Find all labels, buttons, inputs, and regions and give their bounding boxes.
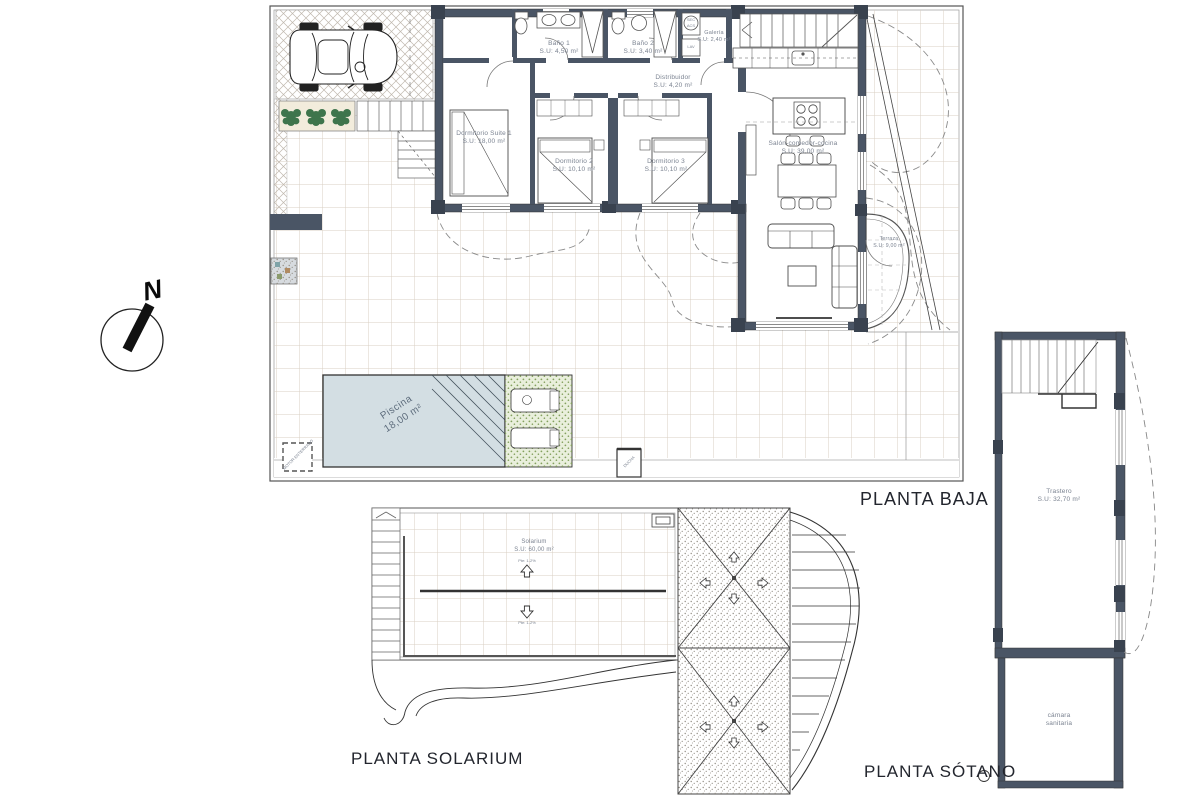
room-label-suite1: Dormitorio Suite 1 S.U: 18,00 m² (444, 130, 524, 147)
room-label-galeria: Galería S.U: 2,40 m² (692, 30, 736, 44)
room-label-solarium: Solarium S.U: 60,00 m² (499, 539, 569, 555)
skylight-box (652, 514, 674, 527)
title-planta-solarium: PLANTA SOLARIUM (351, 749, 523, 769)
room-label-camara: cámara sanitaria (1024, 712, 1094, 729)
room-label-salon: Salón-comedor-cocina S.U: 39,00 m² (758, 140, 848, 157)
sec-label: SEC (682, 17, 700, 22)
room-label-terraza: Terraza S.U: 9,00 m² (864, 236, 914, 250)
curved-pergola-edge (790, 512, 860, 790)
garden-wall (270, 214, 322, 230)
solarium-stairs (372, 508, 400, 660)
bedroom-furniture (450, 100, 708, 203)
room-label-dorm3: Dormitorio 3 S.U: 10,10 m² (631, 158, 701, 175)
car-icon (290, 23, 397, 91)
basement-boundary-dash (1124, 338, 1155, 654)
ground-floor-plan (101, 5, 963, 481)
lav-label: LAV (682, 44, 700, 49)
acs-label: ACS (682, 23, 700, 28)
kitchen-counter (733, 48, 858, 68)
room-label-distribuidor: Distribuidor S.U: 4,20 m² (642, 74, 704, 91)
floorplan-canvas: N PLANTA BAJA PLANTA SOLARIUM PLANTA SÓT… (0, 0, 1200, 800)
title-planta-baja: PLANTA BAJA (860, 489, 989, 510)
floorplan-linework (0, 0, 1200, 800)
north-arrow (101, 303, 163, 371)
solarium-curves (372, 660, 676, 725)
mosaic-feature (271, 258, 297, 284)
slope-label-2: Pte: 1-2% (507, 620, 547, 625)
pantry-column (746, 125, 756, 175)
room-label-bano1: Baño 1 S.U: 4,50 m² (532, 40, 586, 57)
room-label-trastero: Trastero S.U: 32,70 m² (1023, 488, 1095, 505)
planter (279, 101, 355, 131)
slope-label-1: Pte: 1-2% (507, 558, 547, 563)
room-label-bano2: Baño 2 S.U: 3,40 m² (616, 40, 670, 57)
dining-set (778, 153, 836, 209)
room-label-dorm2: Dormitorio 2 S.U: 10,10 m² (539, 158, 609, 175)
roof-panels (678, 508, 790, 794)
title-planta-sotano: PLANTA SÓTANO (864, 762, 1016, 782)
interior-stairs (740, 14, 858, 47)
